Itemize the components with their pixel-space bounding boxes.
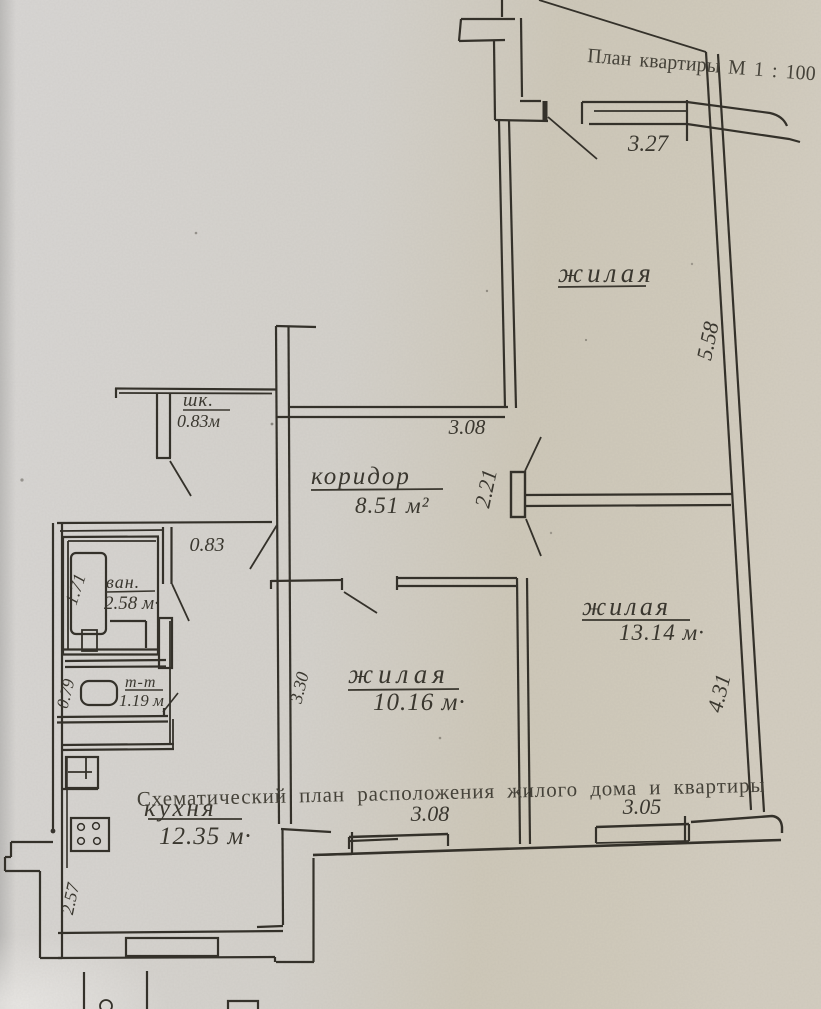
svg-text:кухня: кухня bbox=[144, 795, 217, 822]
svg-text:12.35 м·: 12.35 м· bbox=[159, 823, 252, 850]
svg-text:0.83м: 0.83м bbox=[177, 411, 221, 431]
svg-text:2.58 м·: 2.58 м· bbox=[104, 593, 159, 614]
svg-text:коридор: коридор bbox=[311, 463, 411, 490]
svg-text:0.83: 0.83 bbox=[190, 534, 225, 556]
svg-text:3.08: 3.08 bbox=[410, 801, 450, 826]
svg-text:3.05: 3.05 bbox=[622, 794, 662, 819]
svg-text:ван.: ван. bbox=[106, 572, 140, 592]
svg-text:т-т: т-т bbox=[125, 674, 156, 691]
svg-text:жилая: жилая bbox=[348, 659, 450, 689]
svg-text:3.08: 3.08 bbox=[448, 415, 486, 439]
svg-text:13.14 м·: 13.14 м· bbox=[619, 620, 705, 645]
svg-text:3.27: 3.27 bbox=[627, 131, 670, 156]
svg-text:жилая: жилая bbox=[558, 258, 655, 288]
svg-text:8.51 м²: 8.51 м² bbox=[355, 493, 430, 518]
svg-text:жилая: жилая bbox=[582, 592, 671, 621]
svg-text:шк.: шк. bbox=[183, 390, 214, 411]
svg-text:1.19 м: 1.19 м bbox=[119, 691, 164, 710]
svg-text:10.16 м·: 10.16 м· bbox=[373, 689, 466, 716]
